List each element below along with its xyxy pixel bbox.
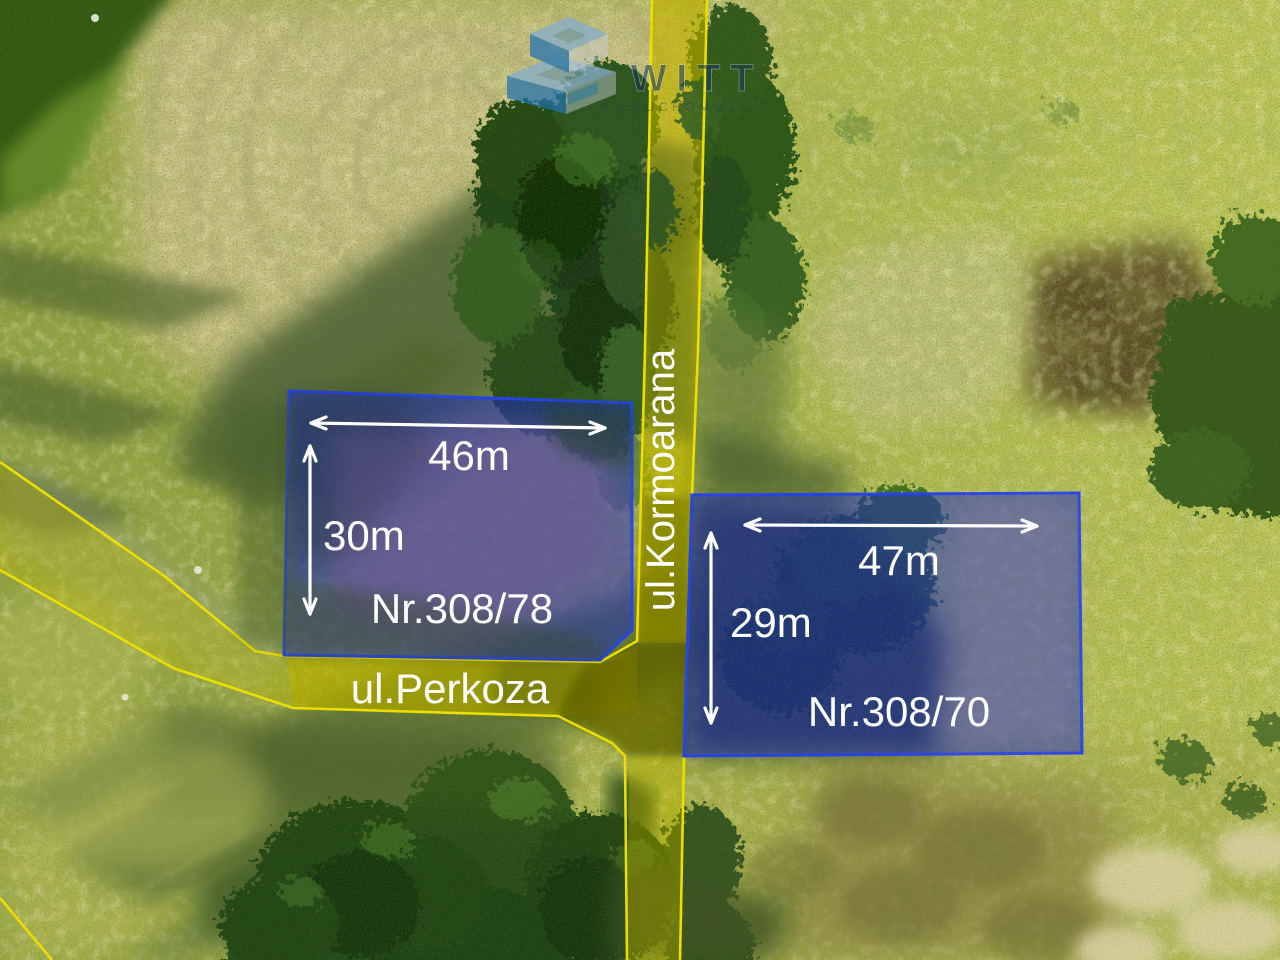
svg-text:47m: 47m [858,537,940,584]
svg-text:Nr.308/78: Nr.308/78 [371,585,553,632]
svg-text:ul.Kormoarana: ul.Kormoarana [639,348,683,611]
svg-text:29m: 29m [730,599,812,646]
svg-text:46m: 46m [428,432,510,479]
svg-text:ul.Perkoza: ul.Perkoza [351,665,550,712]
svg-text:30m: 30m [323,512,405,559]
svg-text:NIERUCHOMOŚCI: NIERUCHOMOŚCI [599,99,761,114]
svg-text:Nr.308/70: Nr.308/70 [808,688,990,735]
svg-text:WITT: WITT [631,58,764,100]
